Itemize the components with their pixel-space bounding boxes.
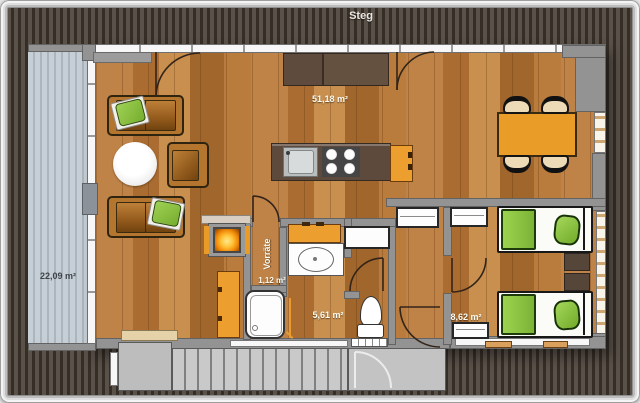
wardrobe-handle xyxy=(218,316,222,321)
fire-glow xyxy=(215,229,239,251)
entry-vestibule xyxy=(348,348,446,391)
window-vent-1 xyxy=(485,341,512,348)
armchair-cushion xyxy=(172,150,199,181)
kitchen-sink xyxy=(283,147,318,177)
cabinet-handle xyxy=(408,164,412,170)
vanity-cabinet xyxy=(288,224,341,243)
armchair xyxy=(167,142,209,188)
terrace xyxy=(28,45,88,343)
window-band-top xyxy=(88,44,606,53)
terrace-door-handle xyxy=(82,183,98,215)
bench xyxy=(121,330,178,341)
sink-faucet xyxy=(286,151,290,155)
towel-rail xyxy=(351,338,388,347)
bed-pillow xyxy=(553,299,582,331)
pantry-area-label: 1,12 m² xyxy=(253,276,291,285)
nightstand xyxy=(564,253,590,271)
washbasin-counter xyxy=(288,243,344,276)
wall-cabinet-top-left xyxy=(93,52,152,63)
toilet-tank xyxy=(357,324,384,338)
shelf-line xyxy=(456,329,485,330)
bedroom-area-label: 8,62 m² xyxy=(444,312,488,322)
landing-window xyxy=(110,352,118,386)
dining-window-right xyxy=(594,112,606,153)
sideboard xyxy=(283,53,389,86)
wardrobe-handle xyxy=(218,287,222,292)
living-area-label: 51,18 m² xyxy=(303,94,357,104)
basin-drain xyxy=(313,257,317,261)
pantry-label: Vorräte xyxy=(262,227,272,281)
shelf-line xyxy=(454,215,484,216)
burner xyxy=(326,163,337,174)
sink-basin xyxy=(288,150,314,174)
bath-area-label: 5,61 m² xyxy=(306,310,350,320)
sofa-pillow xyxy=(151,200,182,228)
sofa-cushion xyxy=(145,100,176,131)
shower xyxy=(245,290,285,339)
bottom-window-bath xyxy=(230,340,348,347)
bath-shelf xyxy=(344,226,390,249)
stove xyxy=(322,147,360,177)
dining-chair xyxy=(541,96,569,114)
round-table xyxy=(113,142,157,186)
wall-bath-stub xyxy=(344,291,360,299)
fireplace-side-panel xyxy=(245,226,250,254)
stair-landing xyxy=(118,342,172,391)
vanity-handle xyxy=(316,222,324,226)
wardrobe xyxy=(217,271,240,338)
bedroom-window-right xyxy=(596,211,606,335)
burner xyxy=(344,163,355,174)
cabinet-drawer-line xyxy=(400,216,435,217)
terrace-bottom-wall xyxy=(28,343,96,351)
vanity-handle xyxy=(302,222,310,226)
fireplace-side-panel xyxy=(204,226,209,254)
dining-chair xyxy=(503,96,531,114)
sofa-cushion xyxy=(116,202,147,233)
bedroom-shelf xyxy=(450,207,488,227)
bottom-window-bedroom xyxy=(455,338,590,346)
bed-pillow xyxy=(553,214,582,247)
stairs xyxy=(172,348,348,391)
burner xyxy=(344,149,355,160)
nightstand xyxy=(564,273,590,291)
hallway-cabinet xyxy=(396,207,439,228)
headboard-line xyxy=(583,208,585,250)
heating-marker xyxy=(289,298,291,338)
window-vent-2 xyxy=(543,341,568,348)
bedroom-shelf xyxy=(452,322,489,339)
bed-duvet xyxy=(501,209,536,250)
terrace-top-wall xyxy=(28,44,88,52)
terrace-area-label: 22,09 m² xyxy=(30,271,86,281)
dining-table xyxy=(497,112,577,157)
floor-plan: Steg 22,09 m² xyxy=(0,0,640,403)
headboard-line xyxy=(583,293,585,335)
cabinet-handle xyxy=(408,152,412,158)
dining-wall-right-block xyxy=(575,57,606,112)
bed-duvet xyxy=(501,294,536,335)
deck-steg-label: Steg xyxy=(331,10,391,22)
shower-drain xyxy=(252,325,258,331)
burner xyxy=(326,149,337,160)
toilet-bowl xyxy=(360,296,382,327)
